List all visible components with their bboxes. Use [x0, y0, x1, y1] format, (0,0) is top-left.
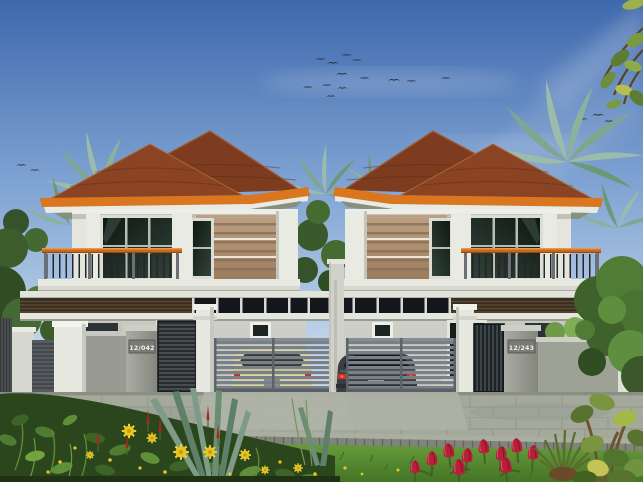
louver-panel-left — [32, 340, 54, 392]
twin-house-rendering: 12/042 — [0, 0, 643, 482]
white-pillar-left — [193, 304, 217, 392]
carport-beams — [20, 291, 336, 321]
pedestrian-gate-left — [158, 321, 196, 392]
gate-pillar-left: 12/042 — [123, 325, 161, 392]
corner-column — [276, 211, 298, 283]
balcony-balusters — [46, 254, 178, 278]
driveway-apron-right — [336, 392, 468, 430]
slat-panel-far-left — [0, 318, 12, 392]
rendering-canvas: 12/042 — [0, 0, 643, 482]
soil-shadow — [0, 476, 340, 482]
floor-slab — [38, 279, 300, 293]
gray-wall-left — [86, 334, 126, 392]
house-number-right: 12/243 — [509, 345, 534, 352]
pedestrian-gate-right — [474, 324, 504, 392]
small-window — [250, 322, 271, 339]
corner-pillar-left — [52, 321, 88, 392]
narrow-window — [190, 218, 214, 279]
gate-pillar-right: 12/243 — [501, 325, 541, 392]
house-number-left: 12/042 — [129, 345, 154, 352]
